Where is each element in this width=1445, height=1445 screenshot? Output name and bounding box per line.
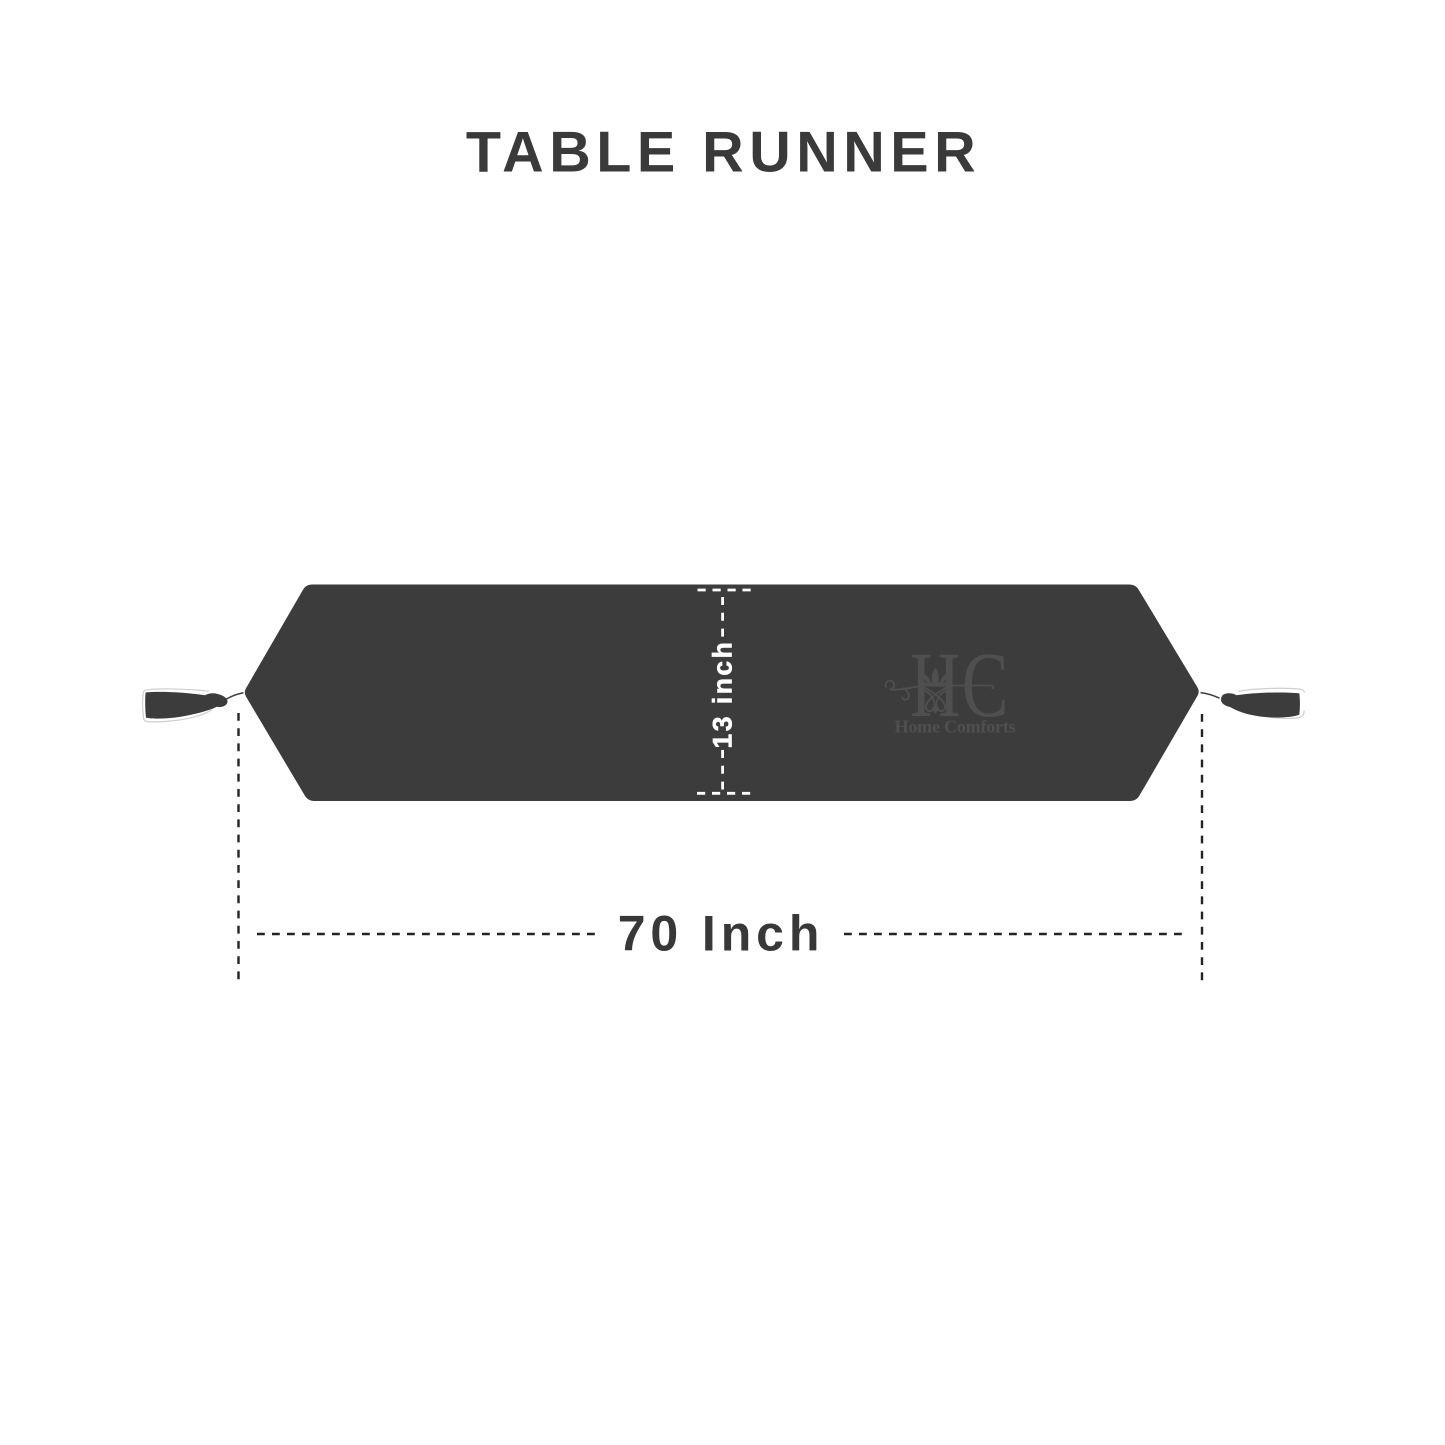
svg-text:13 inch: 13 inch: [707, 640, 737, 749]
svg-text:Home Comforts: Home Comforts: [895, 717, 1016, 737]
svg-text:70 Inch: 70 Inch: [618, 906, 825, 962]
svg-text:TABLE RUNNER: TABLE RUNNER: [466, 121, 981, 185]
